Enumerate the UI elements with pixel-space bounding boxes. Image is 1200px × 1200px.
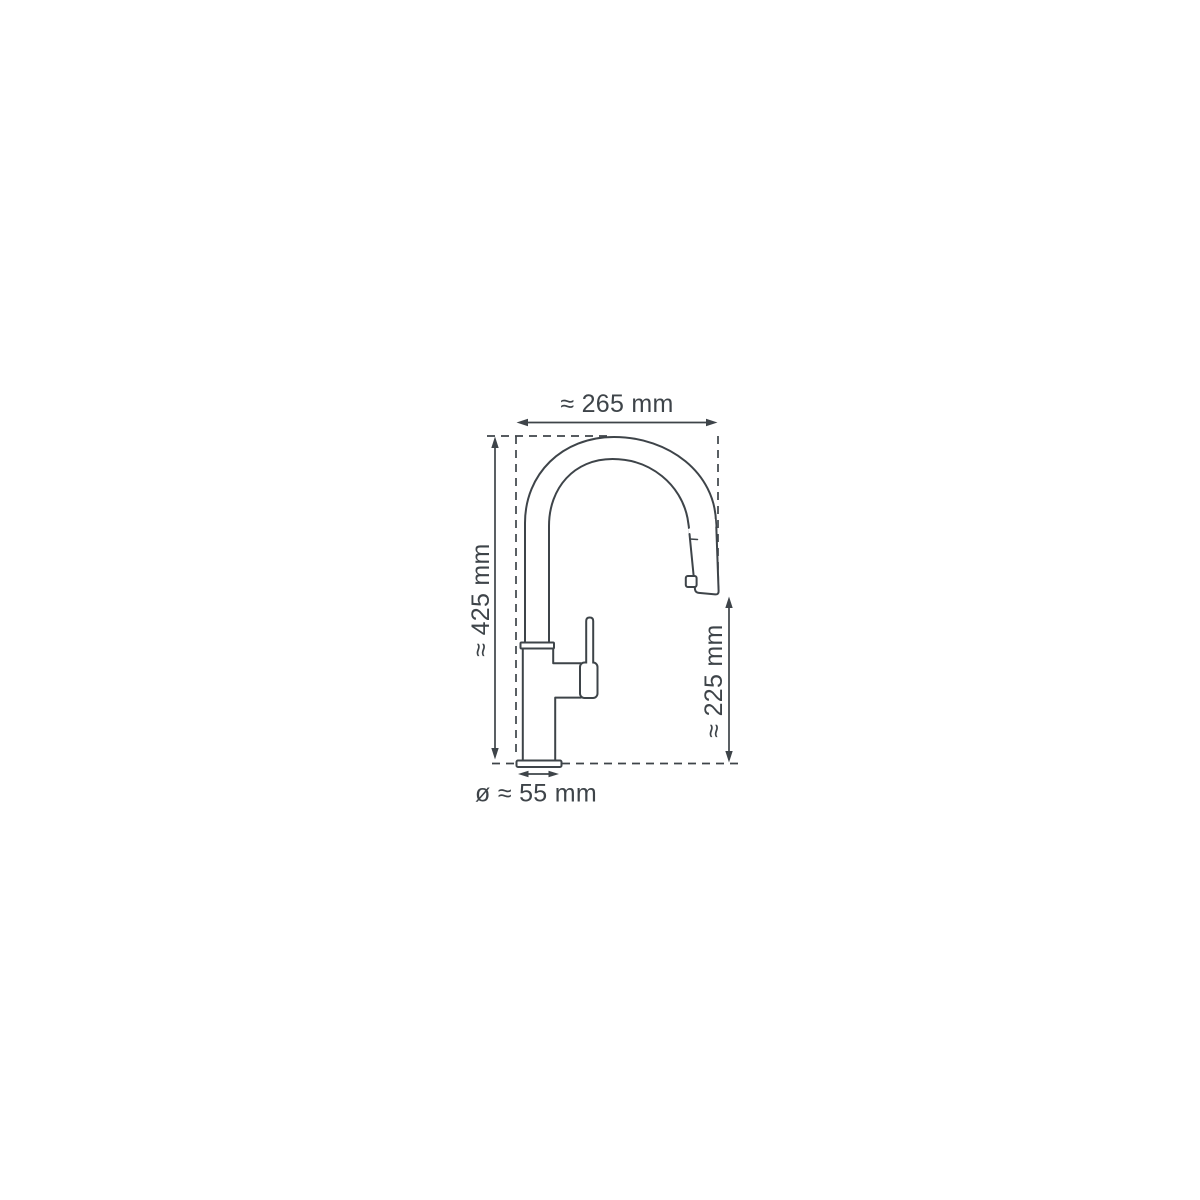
dimension-label-base-diameter: ø ≈ 55 mm <box>475 780 597 808</box>
spray-head-seam <box>690 539 698 540</box>
arrowhead-down-icon <box>491 748 498 760</box>
dimension-spout-height: ≈ 225 mm <box>700 597 733 763</box>
dimension-spout-reach-width: ≈ 265 mm <box>517 390 718 426</box>
body-collar <box>521 643 555 649</box>
dimension-base-diameter: ø ≈ 55 mm <box>475 771 597 808</box>
arrowhead-up-icon <box>491 437 498 449</box>
arrowhead-up-icon <box>725 597 732 609</box>
dimension-label-spout-height: ≈ 225 mm <box>700 624 728 737</box>
dimension-label-total-height: ≈ 425 mm <box>467 543 495 656</box>
arrowhead-right-icon <box>706 419 718 426</box>
diagram-svg: ≈ 265 mm ≈ 425 mm ≈ 225 mm ø ≈ 55 mm <box>0 0 1200 1200</box>
handle-pivot <box>580 663 598 699</box>
dimension-total-height: ≈ 425 mm <box>467 437 499 760</box>
arrowhead-right-icon <box>549 771 560 777</box>
faucet-drawing <box>517 437 721 767</box>
faucet-dimension-diagram: ≈ 265 mm ≈ 425 mm ≈ 225 mm ø ≈ 55 mm <box>0 0 1200 1200</box>
dimension-label-spout-reach: ≈ 265 mm <box>560 390 673 418</box>
arrowhead-down-icon <box>725 751 732 763</box>
spray-head-button <box>686 576 697 587</box>
base-flange <box>517 761 562 768</box>
handle-lever <box>586 618 593 664</box>
faucet-spout-inner-line <box>549 459 690 646</box>
arrowhead-left-icon <box>517 419 529 426</box>
arrowhead-left-icon <box>518 771 529 777</box>
faucet-body <box>523 649 581 762</box>
